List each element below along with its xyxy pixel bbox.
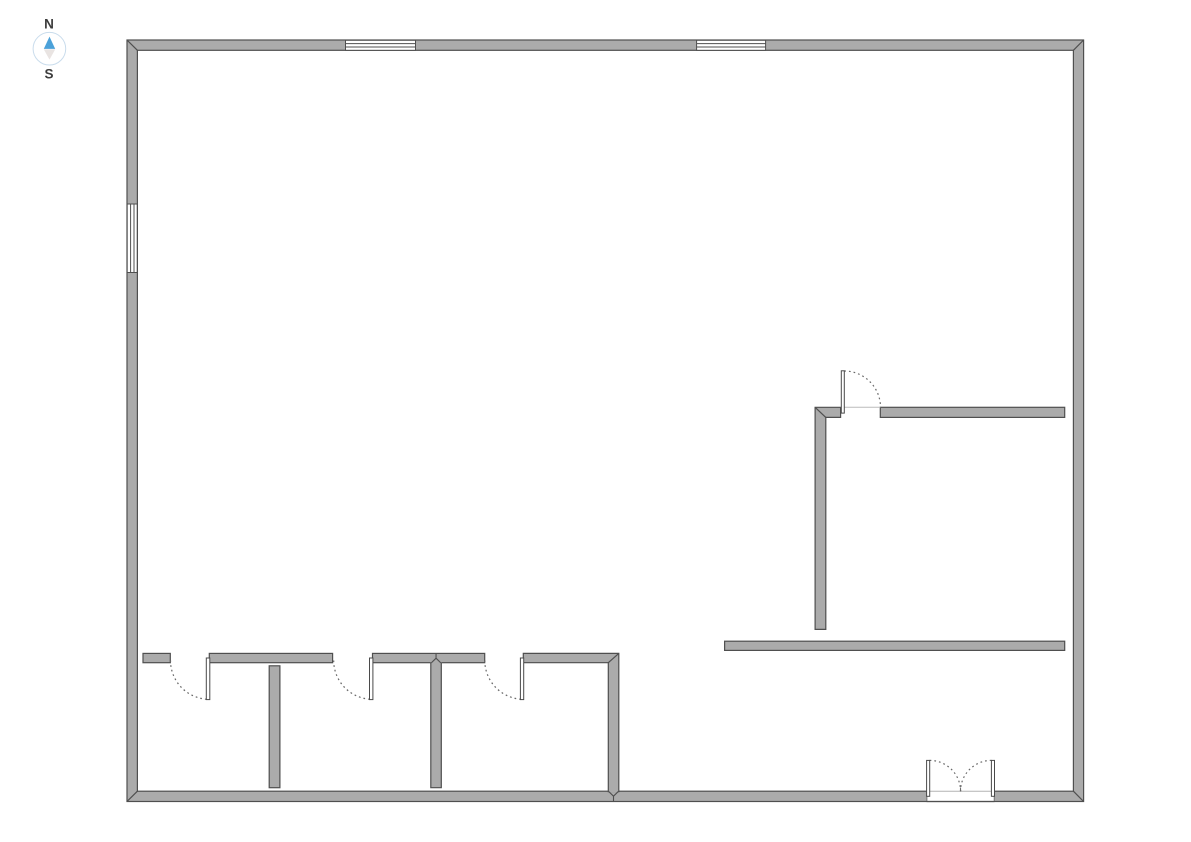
svg-text:N: N [44, 17, 54, 32]
svg-text:S: S [44, 67, 53, 82]
